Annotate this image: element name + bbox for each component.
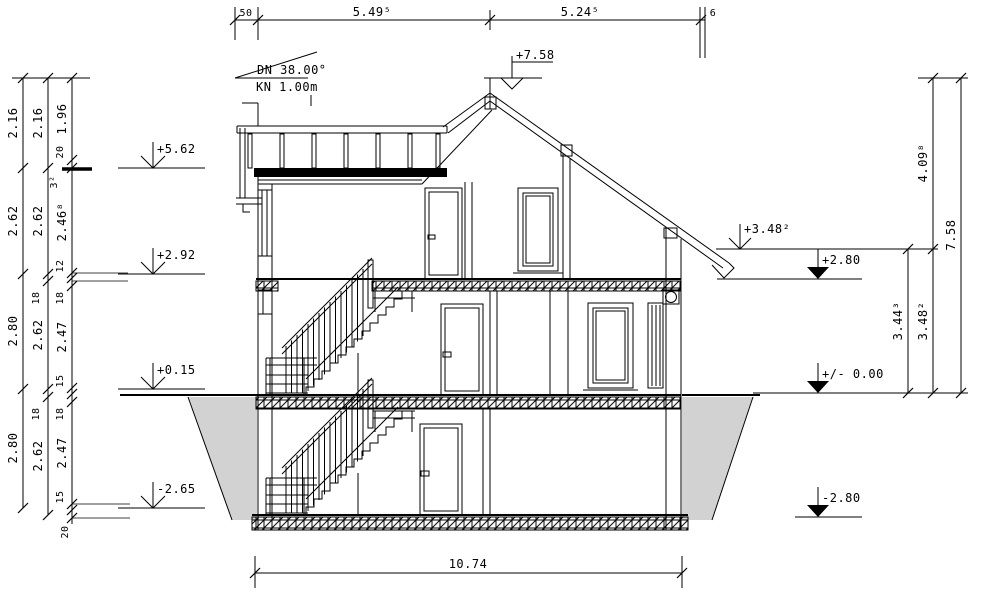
floor-slabs	[252, 279, 688, 530]
elevation-label: +7.58	[516, 48, 555, 62]
knee-height-label: KN 1.00m	[256, 80, 318, 94]
elevation-triangle-icon	[807, 267, 829, 279]
terrace	[236, 103, 447, 212]
elevation-marker-eave: +3.48²	[729, 222, 790, 249]
elevation-label: +0.15	[157, 363, 196, 377]
svg-text:2.62: 2.62	[6, 206, 20, 237]
elevation-marker-zero: +/- 0.00	[807, 363, 884, 393]
elevation-marker-terrace: +5.62	[118, 142, 205, 168]
svg-text:2.62: 2.62	[31, 320, 45, 351]
svg-text:7.58: 7.58	[944, 220, 958, 251]
svg-text:2.47: 2.47	[55, 322, 69, 353]
elevation-label: +/- 0.00	[822, 367, 884, 381]
left-dimension-chains: 2.16 2.62 2.80 2.80 2.16 2.62 18 2.62 18…	[6, 73, 130, 539]
svg-text:2.80: 2.80	[6, 316, 20, 347]
svg-text:4.09⁸: 4.09⁸	[916, 144, 930, 183]
svg-text:3²: 3²	[49, 175, 60, 188]
svg-text:2.16: 2.16	[6, 108, 20, 139]
svg-text:15: 15	[55, 374, 66, 387]
svg-text:18: 18	[31, 407, 42, 420]
elevation-label: +2.80	[822, 253, 861, 267]
bottom-dimension: 10.74	[250, 556, 687, 588]
svg-text:18: 18	[31, 291, 42, 304]
svg-text:12: 12	[55, 259, 66, 272]
svg-text:2.62: 2.62	[31, 206, 45, 237]
attic-window-right	[513, 188, 563, 273]
radiator	[648, 290, 679, 388]
elevation-marker-kg-floor: -2.65	[118, 482, 205, 508]
svg-text:20: 20	[60, 525, 71, 538]
svg-text:3.44³: 3.44³	[891, 302, 905, 341]
roof-pitch-label: DN 38.00°	[257, 63, 327, 77]
eave-gutter	[712, 263, 734, 278]
elevation-label: -2.65	[157, 482, 196, 496]
dim-label: 5.49⁵	[353, 5, 392, 19]
building-section-drawing: DN 38.00° KN 1.00m 50 5.49⁵ 5.24⁵ 6 10.7…	[0, 0, 1000, 603]
dim-label: 5.24⁵	[561, 5, 600, 19]
elevation-marker-kg-slab: -2.80	[795, 487, 862, 517]
roof-pitch-note: DN 38.00° KN 1.00m	[235, 52, 327, 106]
attic-left-window	[258, 190, 272, 256]
doors	[420, 188, 638, 515]
terrace-railing-posts	[248, 134, 440, 168]
svg-text:15: 15	[55, 490, 66, 503]
elevation-triangle-icon	[807, 381, 829, 393]
top-dimension: 50 5.49⁵ 5.24⁵ 6	[230, 5, 716, 58]
elevation-marker-ridge: +7.58	[484, 48, 555, 89]
svg-text:20: 20	[55, 145, 66, 158]
elevation-marker-eg-floor: +0.15	[118, 363, 205, 389]
exterior-walls	[258, 168, 681, 530]
elevation-marker-og-slab: +2.80	[717, 249, 862, 279]
knee-reference-mark	[242, 103, 258, 126]
svg-text:2.46⁸: 2.46⁸	[55, 203, 69, 242]
attic-door	[425, 188, 462, 279]
dim-label: 50	[239, 8, 252, 19]
dim-label: 10.74	[449, 557, 488, 571]
svg-text:1.96: 1.96	[55, 104, 69, 135]
eg-door	[441, 304, 483, 395]
kg-door	[420, 424, 462, 515]
svg-text:3.48²: 3.48²	[916, 302, 930, 341]
terrace-slab	[254, 168, 447, 177]
eg-left-window	[258, 290, 272, 314]
elevation-triangle-icon	[807, 505, 829, 517]
elevation-label: -2.80	[822, 491, 861, 505]
svg-text:2.62: 2.62	[31, 441, 45, 472]
elevation-label: +2.92	[157, 248, 196, 262]
svg-text:18: 18	[55, 291, 66, 304]
dim-label: 6	[710, 8, 717, 19]
elevation-marker-og-floor: +2.92	[118, 248, 205, 274]
svg-text:2.80: 2.80	[6, 433, 20, 464]
ground-left	[120, 395, 257, 520]
svg-text:2.16: 2.16	[31, 108, 45, 139]
pipe-section	[666, 292, 677, 303]
roof	[258, 78, 734, 278]
svg-text:2.47: 2.47	[55, 438, 69, 469]
elevation-label: +3.48²	[744, 222, 790, 236]
interior-walls	[358, 153, 570, 515]
elevation-label: +5.62	[157, 142, 196, 156]
eg-window-right	[583, 303, 638, 390]
svg-text:18: 18	[55, 407, 66, 420]
elevation-triangle-icon	[501, 78, 523, 89]
ground-right	[682, 395, 760, 520]
